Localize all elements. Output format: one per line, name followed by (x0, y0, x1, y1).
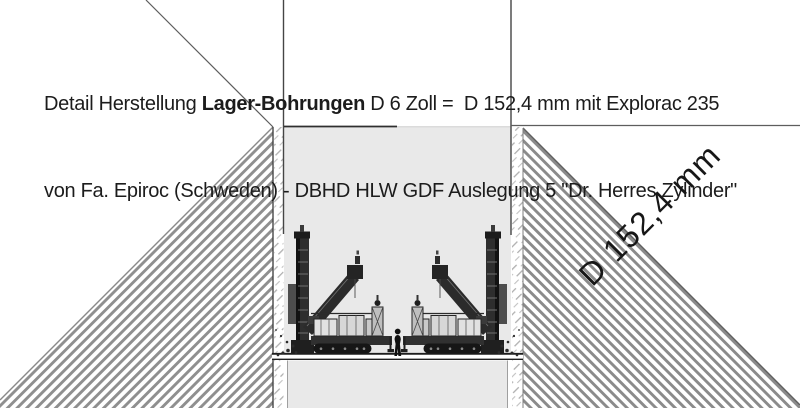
floor-band (272, 355, 523, 359)
rig-mini-tower-stem (377, 295, 379, 301)
rig-body-box-1 (314, 319, 337, 336)
rig-support-foot (388, 349, 395, 352)
title-line1-suffix: D 6 Zoll = D 152,4 mm mit Explorac 235 (365, 93, 719, 115)
gallery-floor (272, 354, 523, 360)
rig-body-box-2 (339, 316, 364, 337)
person-head (395, 329, 401, 335)
title-line-2: von Fa. Epiroc (Schweden) - DBHD HLW GDF… (44, 177, 737, 206)
rig-boom-head (347, 265, 363, 279)
technical-drawing-canvas: Detail Herstellung Lager-Bohrungen D 6 Z… (0, 0, 800, 408)
shaft-lower-fill (288, 361, 508, 408)
rig-mast-side-box (288, 284, 296, 324)
title-line-1: Detail Herstellung Lager-Bohrungen D 6 Z… (44, 90, 737, 119)
title-line1-bold: Lager-Bohrungen (202, 93, 365, 115)
title-line1-prefix: Detail Herstellung (44, 93, 202, 115)
